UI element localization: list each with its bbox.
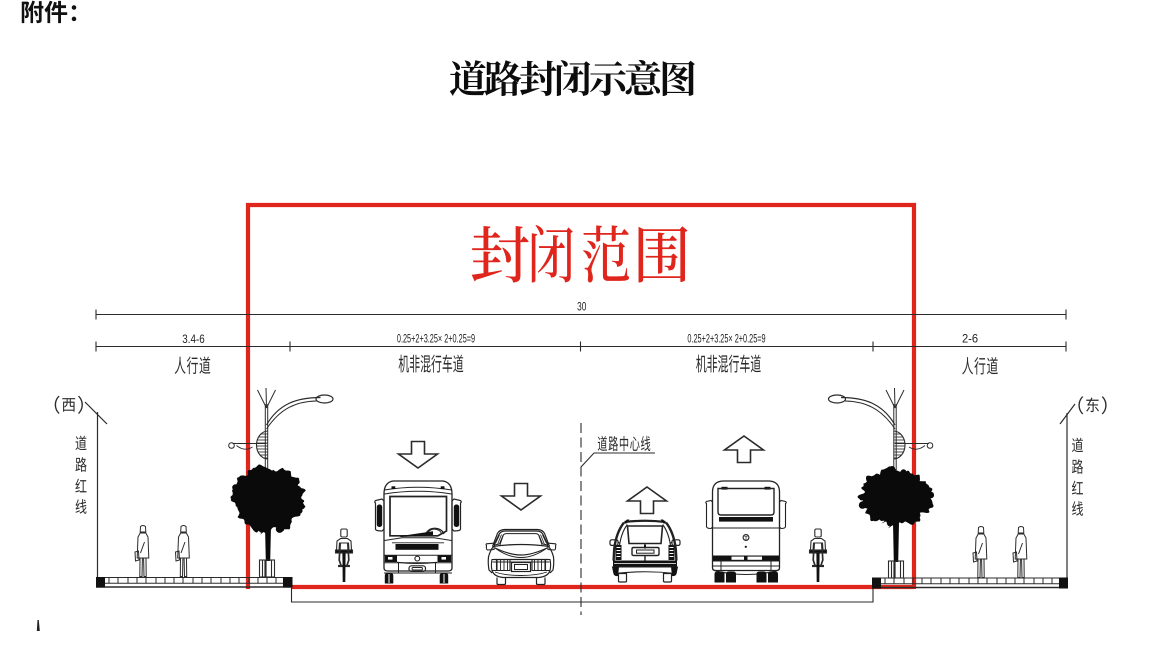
svg-text:2-6: 2-6 xyxy=(962,333,978,345)
svg-text:3.4-6: 3.4-6 xyxy=(182,333,204,346)
svg-text:0.25+2+3.25× 2+0.25=9: 0.25+2+3.25× 2+0.25=9 xyxy=(397,333,476,346)
svg-text:30: 30 xyxy=(577,301,587,314)
svg-text:0.25+2+3.25× 2+0.25=9: 0.25+2+3.25× 2+0.25=9 xyxy=(687,333,766,346)
